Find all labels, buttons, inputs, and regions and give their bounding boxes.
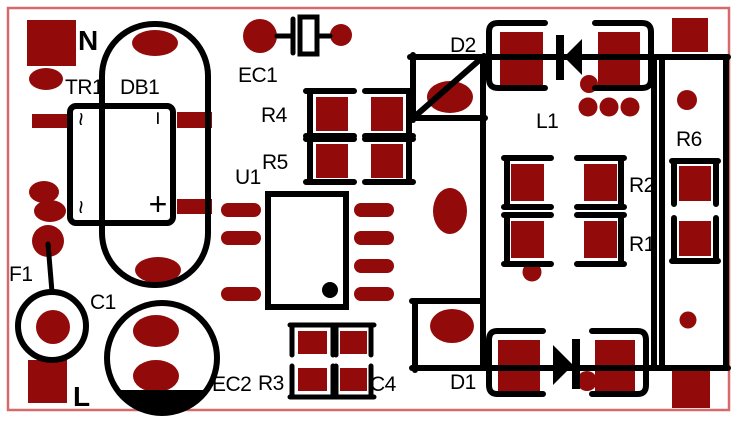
pad <box>27 20 76 66</box>
pad <box>584 164 617 201</box>
pad <box>672 370 710 408</box>
pad <box>371 144 403 178</box>
label-l1: L1 <box>536 110 558 133</box>
label-tr1: TR1 <box>65 76 103 99</box>
label-r2: R2 <box>629 174 655 197</box>
component-ec2: EC2 <box>107 303 251 413</box>
label-ec2: EC2 <box>212 373 251 396</box>
db1-body-outline <box>102 24 208 285</box>
pad <box>316 144 348 178</box>
pad <box>340 331 367 354</box>
r6-pads <box>672 18 711 408</box>
db1-positive-mark: + <box>149 186 168 222</box>
pad <box>354 259 394 273</box>
pad <box>34 200 66 222</box>
pcb-layout-canvas: ~ ~ − + DB1 TR1 N L F1 C1 EC2 EC1 R4 <box>0 0 742 422</box>
d1-cathode-bar <box>572 339 580 389</box>
label-f1: F1 <box>9 263 33 286</box>
pad <box>433 188 467 234</box>
label-r3: R3 <box>258 372 284 395</box>
d2-diode-triangle <box>564 39 582 75</box>
label-c4: C4 <box>370 373 397 396</box>
label-ec1: EC1 <box>238 64 277 87</box>
label-r6: R6 <box>676 128 702 151</box>
pad <box>371 97 403 131</box>
label-d1: D1 <box>450 371 476 394</box>
label-db1: DB1 <box>120 76 159 99</box>
pad <box>32 114 67 128</box>
pad <box>298 368 327 391</box>
pad <box>36 310 70 344</box>
pad <box>29 68 63 90</box>
pad <box>430 309 474 343</box>
label-d2: D2 <box>450 34 476 57</box>
d1-diode-triangle <box>553 345 573 385</box>
pad <box>132 30 178 56</box>
pad <box>330 24 352 46</box>
u1-pads <box>221 203 394 301</box>
pad <box>679 166 711 201</box>
pad <box>354 287 394 301</box>
label-u1: U1 <box>235 166 261 189</box>
pad <box>133 360 179 392</box>
pad <box>221 203 261 217</box>
label-net-line: L <box>73 381 90 412</box>
pad <box>511 221 544 258</box>
db1-negative-mark: − <box>144 111 171 125</box>
pad <box>672 18 708 52</box>
label-c1: C1 <box>90 291 116 314</box>
label-r5: R5 <box>262 151 288 174</box>
d2-cathode-bar <box>556 35 564 80</box>
pad <box>316 97 348 131</box>
pad <box>221 287 261 301</box>
u1-pin1-dot <box>322 282 338 298</box>
pad <box>298 331 327 354</box>
pad <box>511 164 544 201</box>
ec2-pads <box>133 315 179 392</box>
pad <box>600 98 619 117</box>
l1-d2-pads <box>500 32 640 117</box>
label-r1: R1 <box>629 233 655 256</box>
pcb-layout-view: ~ ~ − + DB1 TR1 N L F1 C1 EC2 EC1 R4 <box>0 0 742 422</box>
component-db1: ~ ~ − + DB1 <box>67 24 208 285</box>
pad <box>579 98 598 117</box>
pad <box>680 312 697 329</box>
pad <box>621 98 640 117</box>
pad <box>133 315 179 347</box>
pad <box>29 181 59 203</box>
pad <box>221 231 261 245</box>
pad <box>584 221 617 258</box>
label-r4: R4 <box>261 104 288 127</box>
ec1-body <box>300 17 317 54</box>
pad <box>679 221 711 256</box>
pad <box>243 19 277 53</box>
pad <box>340 368 367 391</box>
label-net-neutral: N <box>78 25 98 56</box>
pad <box>354 231 394 245</box>
pad <box>677 90 697 110</box>
pad <box>28 360 67 403</box>
pad <box>354 203 394 217</box>
